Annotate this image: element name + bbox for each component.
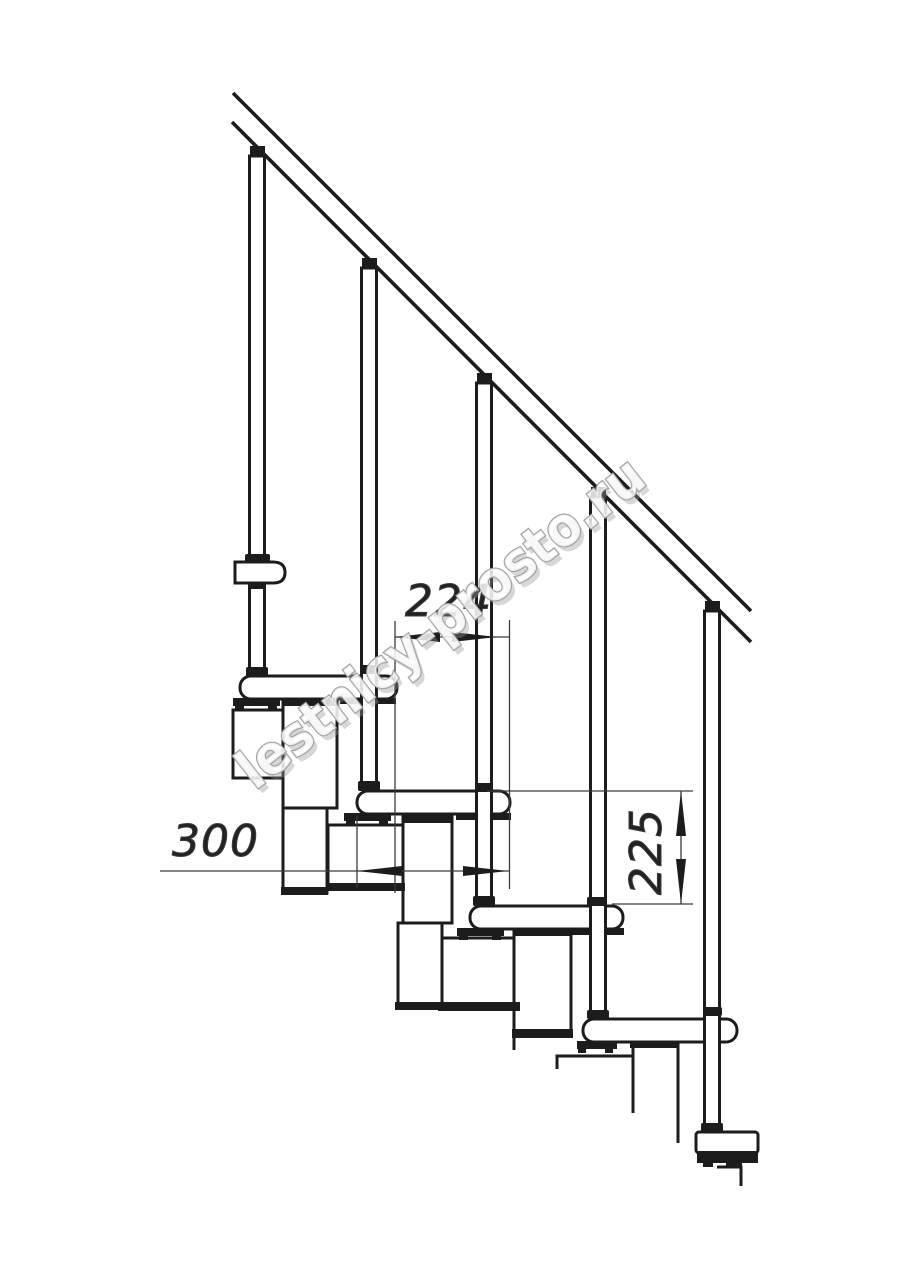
staircase-elevation-drawing: 224 300 225 lestnicy-prosto.ru lestnicy-… xyxy=(0,0,914,1280)
baluster-foot xyxy=(701,1123,723,1132)
baluster-ring xyxy=(587,897,607,906)
baluster-foot xyxy=(473,896,495,906)
module-block xyxy=(283,808,327,893)
module-partial xyxy=(717,1167,741,1186)
tread-end-clamp xyxy=(248,583,265,589)
tread-5-partial xyxy=(696,1132,758,1153)
baluster-foot xyxy=(358,781,380,791)
module-block xyxy=(398,923,442,1008)
baluster-foot xyxy=(246,667,268,677)
module-block xyxy=(328,825,403,889)
arrowhead-down xyxy=(676,859,686,904)
module-block xyxy=(403,817,452,923)
arrowhead-up xyxy=(676,791,686,836)
baluster-5 xyxy=(701,601,723,1132)
module-block xyxy=(442,938,517,1004)
tread-end-view xyxy=(235,562,285,589)
module-block xyxy=(514,930,571,1033)
baluster-1 xyxy=(245,146,270,677)
baluster-foot xyxy=(587,1010,609,1019)
dimension-label-tread-length: 300 xyxy=(172,816,259,867)
baluster-ring xyxy=(703,1007,722,1016)
baluster-4 xyxy=(587,487,609,1019)
dimension-label-step-rise: 225 xyxy=(621,808,672,895)
module-partial xyxy=(557,1056,633,1069)
staircase-drawing-page: 224 300 225 lestnicy-prosto.ru lestnicy-… xyxy=(0,0,914,1280)
